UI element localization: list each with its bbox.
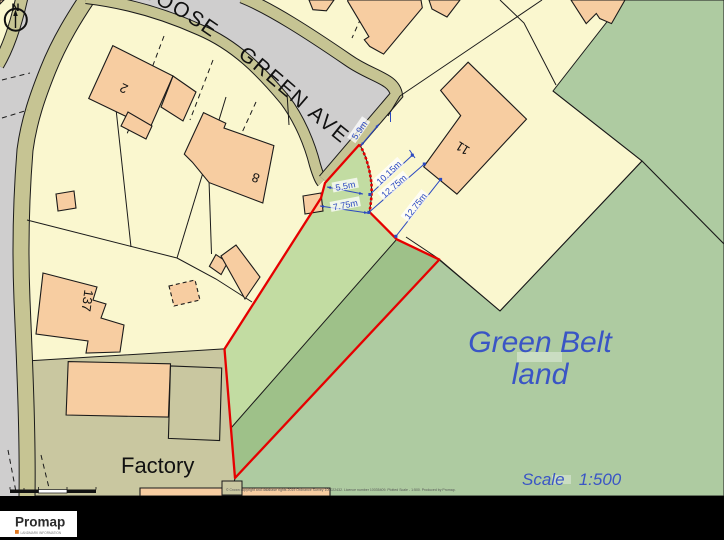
svg-text:Scale 1:500: Scale 1:500 (522, 470, 622, 489)
svg-text:LANDMARK INFORMATION: LANDMARK INFORMATION (21, 531, 62, 535)
svg-text:Factory: Factory (121, 453, 194, 478)
svg-text:Promap: Promap (15, 515, 65, 530)
svg-text:137: 137 (79, 289, 97, 313)
svg-text:land: land (512, 358, 570, 391)
svg-text:Green Belt: Green Belt (468, 326, 613, 359)
svg-text:© Crown copyright and database: © Crown copyright and database rights 20… (226, 488, 456, 492)
